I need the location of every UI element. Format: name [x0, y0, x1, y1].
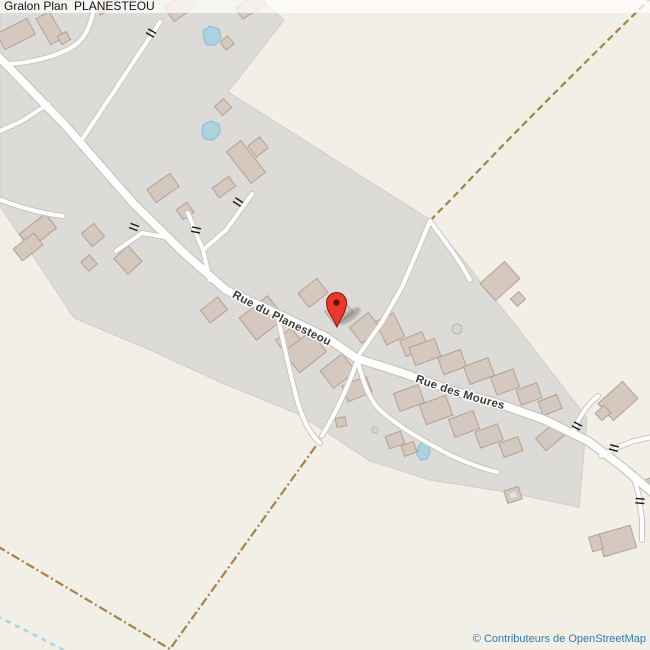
map-page: Rue du Planesteou Rue des Moures Gralon …: [0, 0, 650, 650]
silo-building: [372, 427, 378, 433]
osm-attribution-link[interactable]: © Contributeurs de OpenStreetMap: [473, 633, 646, 645]
building: [335, 417, 346, 428]
silo-building: [452, 324, 462, 334]
map-canvas[interactable]: Rue du Planesteou Rue des Moures: [0, 0, 650, 650]
page-title: Gralon Plan PLANESTEOU: [4, 0, 155, 13]
title-bar: Gralon Plan PLANESTEOU: [0, 0, 650, 13]
